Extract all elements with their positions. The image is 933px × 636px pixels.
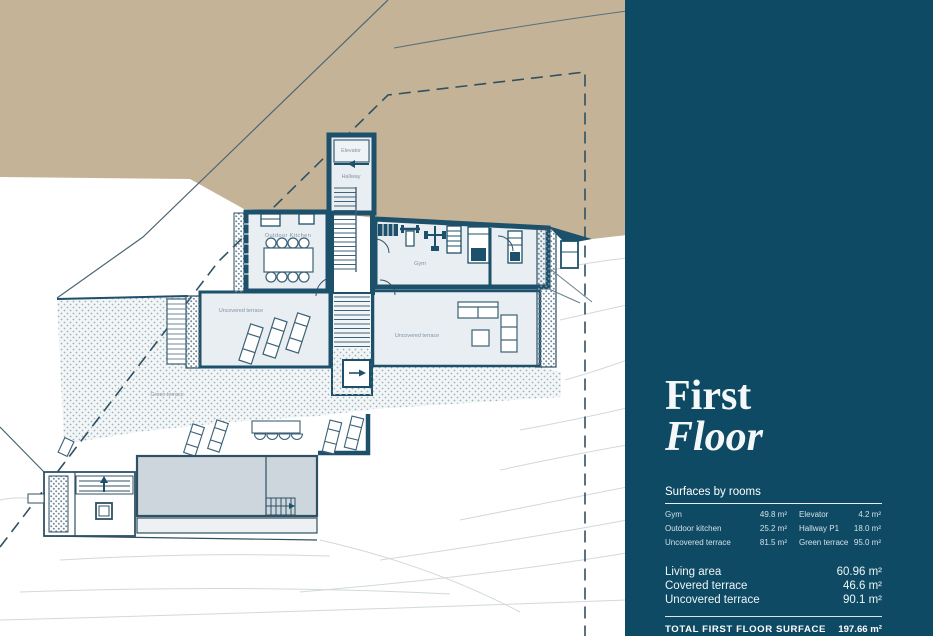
room-area: 25.2 m²	[751, 525, 787, 533]
outdoor-kitchen-label: Outdoor Kitchen	[265, 233, 311, 239]
summary-label: Living area	[665, 566, 721, 580]
east-wall-strip	[537, 229, 556, 367]
total-surface-row: TOTAL FIRST FLOOR SURFACE 197.66 m²	[665, 624, 882, 635]
pool-complex	[28, 456, 317, 540]
room-name: Uncovered terrace	[665, 539, 749, 547]
room-area: 81.5 m²	[751, 539, 787, 547]
room-area: 4.2 m²	[843, 511, 881, 519]
title-line-1: First	[665, 376, 882, 417]
info-sidebar: First Floor Surfaces by rooms Gym 49.8 m…	[625, 0, 933, 636]
room-area: 95.0 m²	[843, 539, 881, 547]
room-area: 49.8 m²	[751, 511, 787, 519]
gym-label: Gym	[414, 261, 426, 267]
total-divider	[665, 616, 882, 617]
room-name: Outdoor kitchen	[665, 525, 749, 533]
summary-row: Uncovered terrace 90.1 m²	[665, 594, 882, 608]
central-exterior-stair	[332, 293, 372, 395]
hallway-label: Hallway	[342, 174, 361, 180]
summary-value: 46.6 m²	[843, 580, 882, 594]
total-value: 197.66 m²	[838, 624, 882, 635]
west-exterior-stair	[167, 296, 200, 368]
room-name: Gym	[665, 511, 749, 519]
surfaces-heading: Surfaces by rooms	[665, 486, 882, 504]
summary-value: 90.1 m²	[843, 594, 882, 608]
surface-summary: Living area 60.96 m² Covered terrace 46.…	[665, 566, 882, 607]
room-name: Green terrace	[789, 539, 841, 547]
kitchen-counter-icon	[261, 214, 280, 226]
floor-plan-canvas: Elevator Hallway Outdoor Kitchen Gym Unc…	[0, 0, 627, 636]
room-surfaces-table: Gym 49.8 m² Elevator 4.2 m² Outdoor kitc…	[665, 511, 882, 547]
pool-house-table-icon	[96, 503, 112, 519]
gym-room	[375, 219, 548, 287]
summary-row: Covered terrace 46.6 m²	[665, 580, 882, 594]
summary-row: Living area 60.96 m²	[665, 566, 882, 580]
outdoor-kitchen-room	[234, 212, 328, 293]
room-name: Hallway P1	[789, 525, 841, 533]
summary-label: Covered terrace	[665, 580, 747, 594]
room-area: 18.0 m²	[843, 525, 881, 533]
uncovered-terrace-left-room	[200, 292, 330, 367]
kitchen-sink-icon	[299, 214, 314, 224]
dining-table-icon	[264, 238, 313, 282]
terrain-area	[0, 0, 627, 239]
uncovered-terrace-left-label: Uncovered terrace	[219, 308, 263, 314]
title-line-2: Floor	[665, 417, 882, 458]
uncovered-terrace-right-label: Uncovered terrace	[395, 333, 439, 339]
room-name: Elevator	[789, 511, 841, 519]
elevator-label: Elevator	[341, 148, 361, 154]
page-title: First Floor	[665, 376, 882, 458]
pool-walkway	[137, 518, 317, 533]
summary-label: Uncovered terrace	[665, 594, 760, 608]
summary-value: 60.96 m²	[837, 566, 882, 580]
total-label: TOTAL FIRST FLOOR SURFACE	[665, 624, 826, 635]
green-terrace-label: Green terrace	[150, 392, 183, 398]
